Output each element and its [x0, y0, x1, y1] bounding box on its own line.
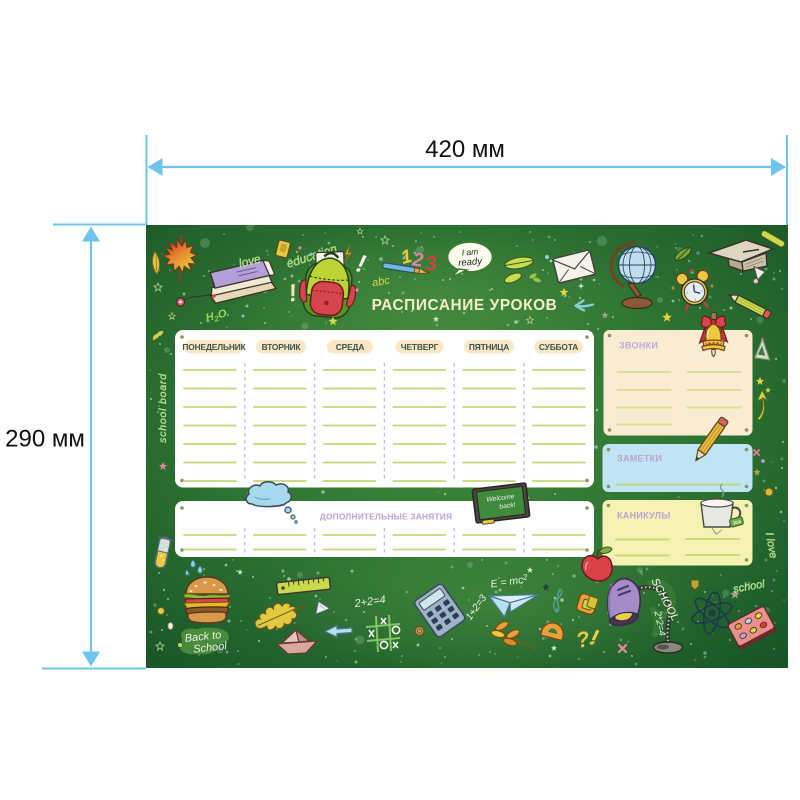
svg-text:ПЯТНИЦА: ПЯТНИЦА: [469, 342, 509, 352]
svg-text:КАНИКУЛЫ: КАНИКУЛЫ: [617, 511, 670, 521]
svg-text:СРЕДА: СРЕДА: [336, 342, 365, 352]
svg-text:РАСПИСАНИЕ УРОКОВ: РАСПИСАНИЕ УРОКОВ: [372, 297, 558, 314]
svg-text:ЗАМЕТКИ: ЗАМЕТКИ: [617, 454, 662, 464]
svg-text:school board: school board: [157, 373, 169, 443]
svg-text:3: 3: [425, 253, 438, 276]
svg-text:ПОНЕДЕЛЬНИК: ПОНЕДЕЛЬНИК: [182, 342, 246, 352]
svg-text:ЗВОНКИ: ЗВОНКИ: [619, 341, 658, 351]
svg-text:ЧЕТВЕРГ: ЧЕТВЕРГ: [401, 342, 439, 352]
svg-text:ready: ready: [458, 256, 484, 269]
svg-text:ВТОРНИК: ВТОРНИК: [262, 342, 302, 352]
svg-text:290 мм: 290 мм: [5, 426, 85, 453]
svg-text:ДОПОЛНИТЕЛЬНЫЕ ЗАНЯТИЯ: ДОПОЛНИТЕЛЬНЫЕ ЗАНЯТИЯ: [320, 512, 452, 522]
svg-text:СУББОТА: СУББОТА: [539, 342, 578, 352]
svg-text:420 мм: 420 мм: [425, 136, 505, 163]
